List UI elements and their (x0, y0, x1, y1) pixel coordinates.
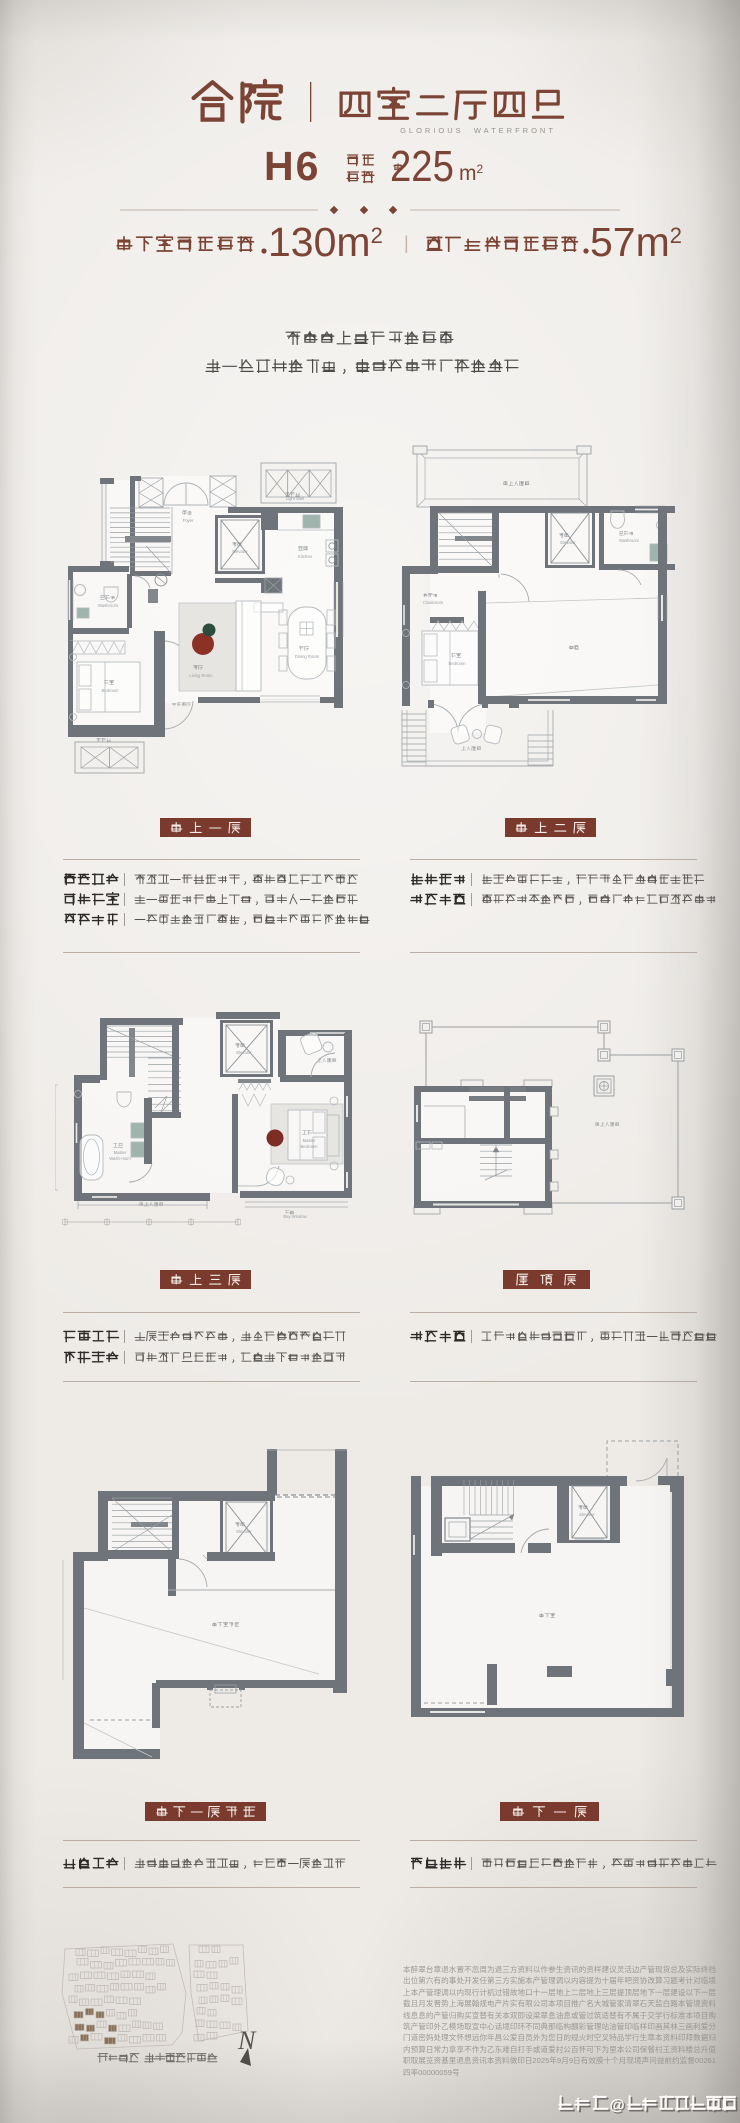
svg-text:Elevator: Elevator (232, 549, 248, 554)
svg-text:Elevator: Elevator (560, 540, 576, 545)
svg-text:Kitchen: Kitchen (298, 554, 313, 559)
svg-text:Elevator: Elevator (236, 1050, 252, 1055)
svg-text:Light Well: Light Well (286, 496, 304, 501)
svg-text:Elevator: Elevator (236, 1529, 252, 1534)
svg-text:Master: Master (114, 1150, 127, 1155)
svg-text:Bay Window: Bay Window (283, 1214, 307, 1219)
svg-text:Wash-room: Wash-room (109, 1156, 131, 1161)
svg-text:Elevator: Elevator (579, 1512, 595, 1517)
svg-text:Cloakroom: Cloakroom (423, 600, 444, 605)
svg-text:Master: Master (303, 1138, 316, 1143)
svg-text:Washroom: Washroom (619, 538, 640, 543)
svg-text:Foyer: Foyer (183, 518, 194, 523)
svg-text:Washroom: Washroom (98, 603, 119, 608)
svg-text:Bedroom: Bedroom (449, 661, 467, 666)
svg-text:Bedroom: Bedroom (102, 688, 120, 693)
svg-text:@: @ (610, 2097, 625, 2114)
svg-text:Living Room: Living Room (189, 673, 213, 678)
svg-text:Dining Room: Dining Room (295, 654, 320, 659)
svg-text:Bedroom: Bedroom (301, 1144, 319, 1149)
